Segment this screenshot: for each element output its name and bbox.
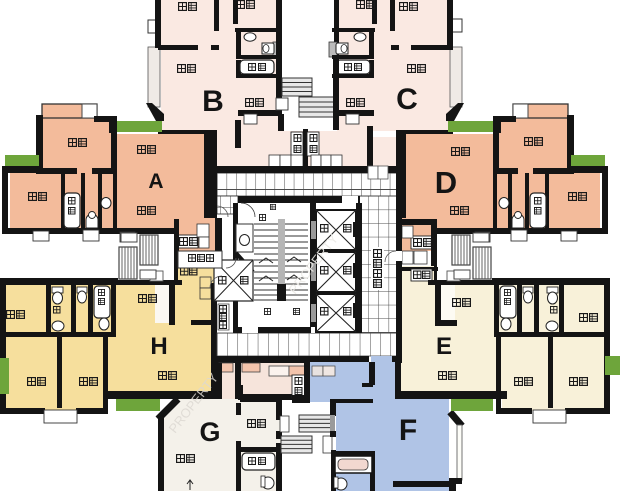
svg-text:E: E: [436, 333, 452, 360]
svg-text:D: D: [435, 165, 457, 200]
svg-text:G: G: [199, 417, 220, 447]
svg-text:F: F: [399, 414, 417, 447]
svg-text:H: H: [150, 333, 167, 360]
svg-text:C: C: [396, 83, 418, 116]
svg-text:B: B: [202, 85, 224, 118]
svg-text:A: A: [148, 170, 163, 193]
